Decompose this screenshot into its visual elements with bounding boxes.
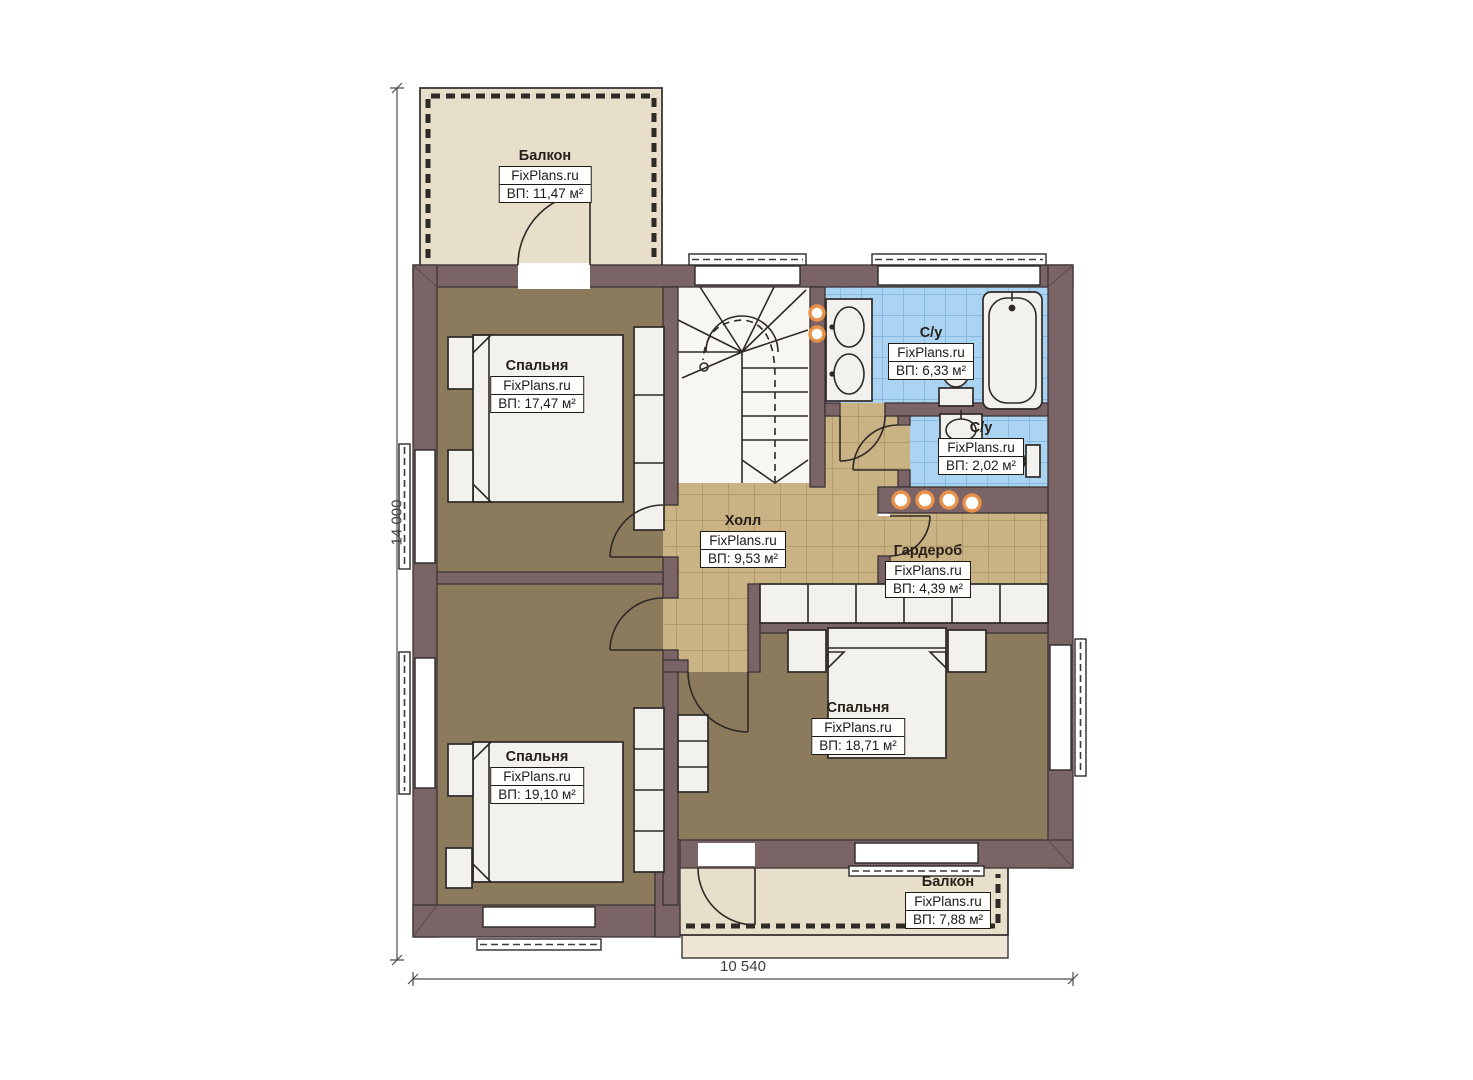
bed-bottom-left <box>446 742 623 888</box>
bathtub <box>983 292 1042 409</box>
door-opening <box>663 505 678 557</box>
nightstand <box>788 630 826 672</box>
door-opening <box>840 403 885 416</box>
door-opening <box>688 660 748 672</box>
nightstand <box>446 848 472 888</box>
window-bedroom-balcony <box>849 843 984 876</box>
vanity-double-sink <box>826 299 872 401</box>
balcony-top-area <box>420 88 662 268</box>
closet-row-hall <box>760 584 1048 623</box>
floor-plan-drawing <box>0 0 1473 1080</box>
closet-bedroom-bottom-left <box>634 708 664 872</box>
nightstand <box>448 337 473 389</box>
dimension-width-label: 10 540 <box>698 958 788 975</box>
window-top-bathroom <box>872 254 1046 285</box>
door-opening <box>663 598 678 650</box>
closet-bedroom-top-left <box>634 327 664 530</box>
window-left-lower <box>399 652 435 794</box>
floor-plan-page: Балкон FixPlans.ru ВП: 11,47 м² Спальня … <box>0 0 1473 1080</box>
sink-small <box>940 410 982 446</box>
door-opening <box>878 516 890 556</box>
toilet-main <box>939 351 973 406</box>
window-top-stairs <box>689 254 806 285</box>
nightstand <box>448 744 473 796</box>
nightstand <box>448 450 473 502</box>
bed-top-left <box>448 335 623 502</box>
door-opening <box>898 425 910 470</box>
nightstand <box>948 630 986 672</box>
window-right <box>1050 639 1086 776</box>
dimension-height-label: 14 000 <box>389 478 406 568</box>
dresser-bedroom-bottom-right <box>678 715 708 792</box>
toilet-small <box>993 445 1040 477</box>
balcony-bottom-area <box>678 866 1008 958</box>
